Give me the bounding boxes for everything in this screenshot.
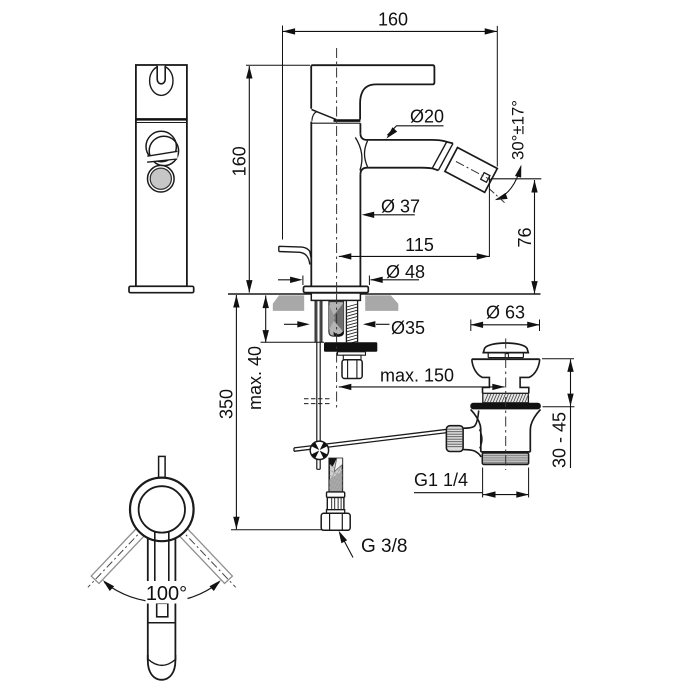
svg-text:Ø35: Ø35 [391, 318, 425, 338]
svg-text:30 - 45: 30 - 45 [550, 412, 570, 468]
svg-text:Ø20: Ø20 [410, 107, 444, 127]
svg-text:G1 1/4: G1 1/4 [414, 470, 468, 490]
svg-text:Ø 37: Ø 37 [381, 197, 420, 217]
svg-text:100°: 100° [146, 583, 187, 605]
svg-text:30°±17°: 30°±17° [509, 100, 528, 160]
svg-text:76: 76 [515, 227, 535, 247]
svg-text:G 3/8: G 3/8 [361, 536, 407, 557]
svg-text:160: 160 [378, 10, 408, 30]
svg-text:115: 115 [405, 235, 434, 255]
svg-text:350: 350 [217, 389, 237, 419]
svg-text:max. 150: max. 150 [380, 366, 454, 386]
svg-text:Ø 63: Ø 63 [486, 303, 525, 323]
svg-text:max. 40: max. 40 [245, 346, 265, 410]
svg-text:Ø 48: Ø 48 [386, 262, 425, 282]
svg-text:160: 160 [230, 146, 250, 176]
